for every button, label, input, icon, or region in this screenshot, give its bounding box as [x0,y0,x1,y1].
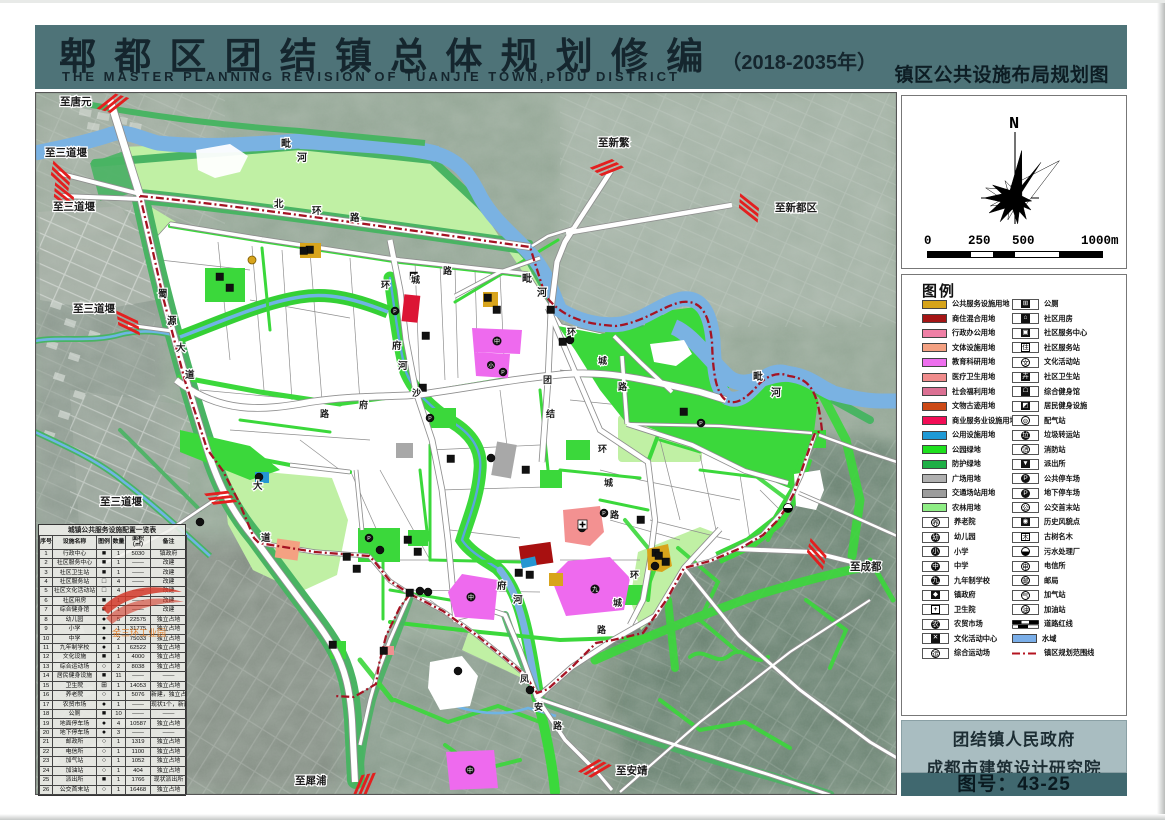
svg-text:河: 河 [771,387,781,399]
svg-text:环: 环 [312,206,322,217]
svg-text:北: 北 [274,198,284,210]
svg-text:金三环工业园: 金三环工业园 [112,627,166,638]
svg-text:沙: 沙 [412,388,421,398]
svg-text:城: 城 [598,355,607,366]
svg-text:至安靖: 至安靖 [616,764,648,777]
svg-text:至唐元: 至唐元 [60,95,92,108]
svg-text:路: 路 [553,720,563,731]
svg-text:环: 环 [567,327,576,337]
svg-text:大: 大 [176,342,186,354]
svg-text:团: 团 [543,375,552,385]
svg-text:毗: 毗 [522,272,532,285]
svg-text:道: 道 [185,369,195,381]
svg-text:府: 府 [497,580,507,592]
svg-text:至新都区: 至新都区 [775,201,817,214]
svg-text:中: 中 [494,338,500,346]
svg-text:P: P [501,370,505,376]
svg-text:至三道堰: 至三道堰 [73,302,115,315]
svg-text:源: 源 [167,315,177,327]
svg-text:至成都: 至成都 [850,560,882,573]
svg-text:至犀浦: 至犀浦 [295,774,327,787]
svg-text:至新繁: 至新繁 [598,136,630,149]
svg-text:城: 城 [613,597,622,608]
svg-text:环: 环 [630,570,639,580]
svg-text:大: 大 [253,480,263,492]
svg-text:河: 河 [297,152,307,164]
svg-text:府: 府 [392,340,402,352]
svg-text:路: 路 [443,265,453,276]
svg-text:环: 环 [598,444,607,454]
svg-text:环: 环 [381,280,390,290]
svg-text:路: 路 [597,624,607,635]
svg-text:路: 路 [350,212,360,224]
svg-text:P: P [393,309,397,315]
svg-text:毗: 毗 [281,137,291,150]
svg-text:安: 安 [534,701,543,712]
svg-text:九: 九 [592,586,598,594]
svg-text:结: 结 [546,408,555,419]
svg-text:道: 道 [261,532,271,544]
svg-text:P: P [602,511,606,517]
svg-text:凤: 凤 [520,674,529,684]
svg-text:中: 中 [468,594,474,602]
svg-text:P: P [367,536,371,542]
svg-text:城: 城 [604,477,613,488]
svg-text:路: 路 [320,408,330,419]
svg-text:至三道堰: 至三道堰 [45,146,87,159]
svg-text:P: P [699,421,703,427]
svg-text:中: 中 [467,767,473,775]
svg-text:蜀: 蜀 [158,289,168,300]
svg-text:毗: 毗 [753,370,763,383]
svg-text:河: 河 [513,594,523,606]
svg-text:城: 城 [411,274,420,285]
svg-text:河: 河 [537,287,547,299]
svg-text:河: 河 [398,360,408,372]
svg-text:府: 府 [359,399,368,410]
svg-text:路: 路 [610,509,620,520]
svg-text:小: 小 [488,362,494,370]
svg-text:至三道堰: 至三道堰 [100,495,142,508]
svg-text:路: 路 [618,381,628,392]
svg-text:P: P [428,416,432,422]
svg-text:至三道堰: 至三道堰 [53,200,95,213]
svg-text:N: N [1009,115,1019,134]
